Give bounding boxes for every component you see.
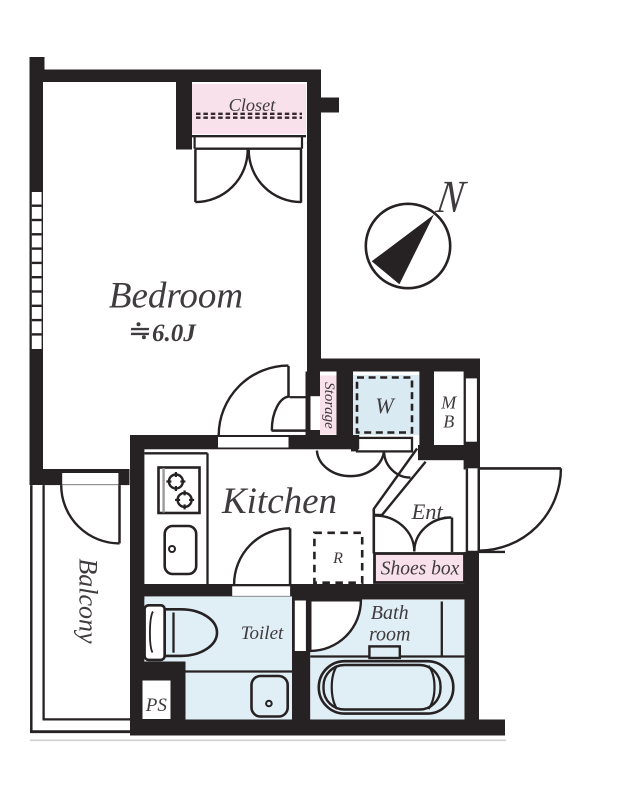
svg-text:Toilet: Toilet: [241, 623, 284, 644]
svg-text:Kitchen: Kitchen: [221, 481, 337, 522]
svg-text:room: room: [369, 624, 410, 646]
svg-text:Closet: Closet: [229, 95, 277, 115]
svg-text:R: R: [332, 550, 343, 567]
svg-text:Bath: Bath: [371, 602, 409, 624]
svg-text:B: B: [443, 412, 454, 432]
svg-text:M: M: [440, 393, 457, 413]
svg-text:Ent.: Ent.: [411, 499, 449, 524]
svg-text:W: W: [375, 393, 395, 418]
svg-text:Shoes box: Shoes box: [381, 559, 460, 580]
svg-text:Bedroom: Bedroom: [109, 276, 243, 317]
svg-text:6.0J: 6.0J: [152, 320, 197, 347]
svg-text:Balcony: Balcony: [74, 558, 103, 644]
svg-text:PS: PS: [145, 695, 168, 716]
svg-text:Storage: Storage: [321, 382, 337, 429]
